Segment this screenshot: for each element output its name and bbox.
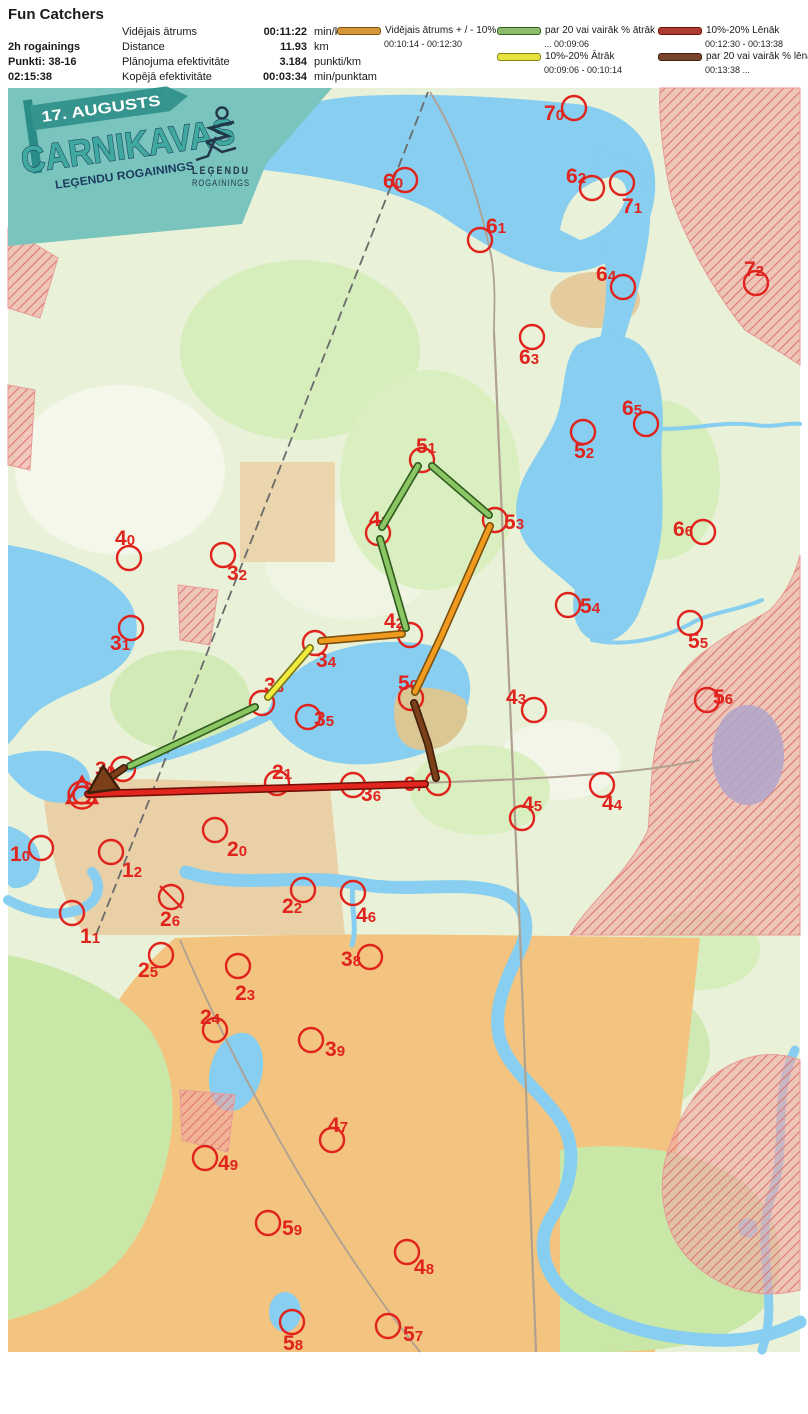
map-background <box>8 88 800 1352</box>
logo-line2: ROGAININGS <box>192 178 250 188</box>
rogaining-map: 17. AUGUSTS CARNIKAVAS LEĢENDU ROGAINING… <box>0 0 808 1414</box>
logo-line1: LEĢENDU <box>192 165 250 177</box>
